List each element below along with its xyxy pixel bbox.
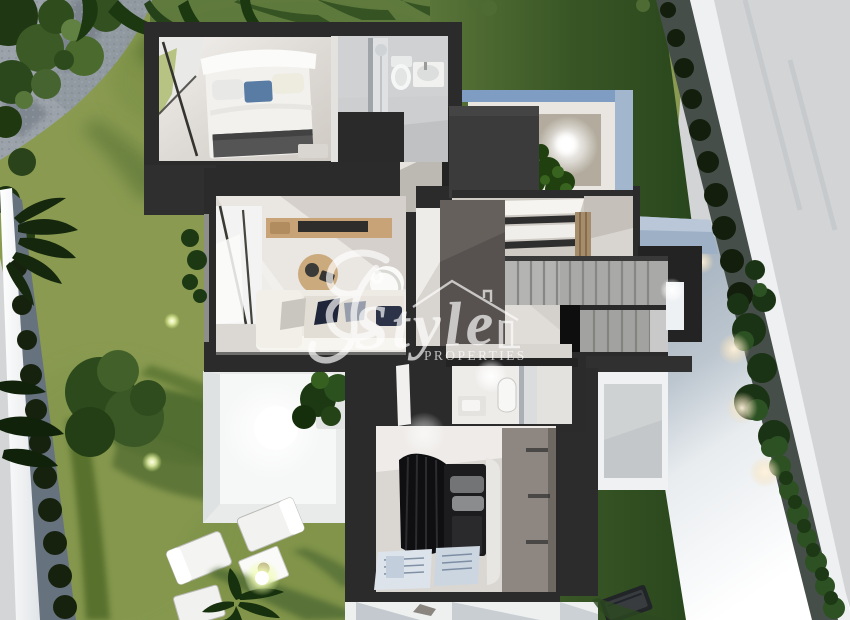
svg-text:PROPERTIES: PROPERTIES xyxy=(424,348,527,363)
